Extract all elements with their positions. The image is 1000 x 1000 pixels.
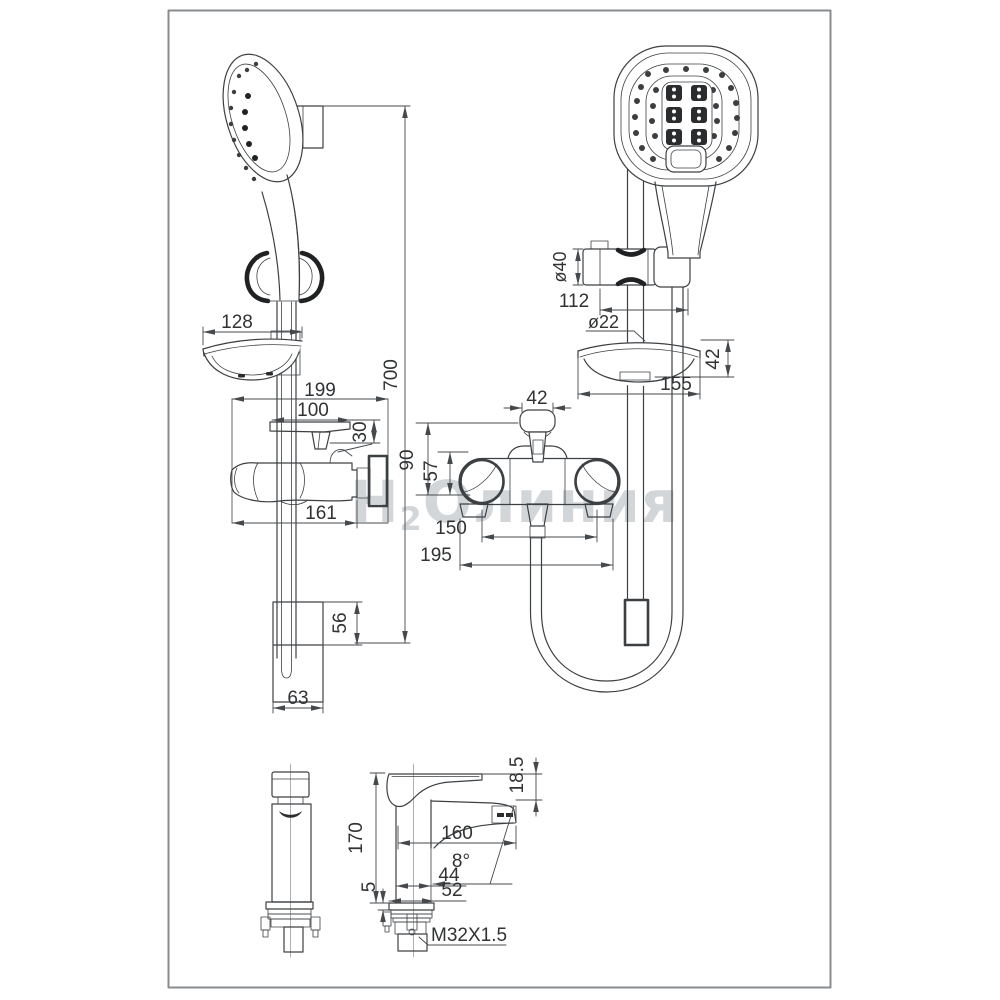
- dim-label-d22: ø22: [588, 312, 619, 332]
- dim-label-700: 700: [381, 359, 402, 391]
- hand-shower-front-view: [614, 46, 758, 258]
- dim-inlet-spacing: 150: [435, 510, 597, 542]
- dim-holder-diameter: ø40: [550, 249, 583, 285]
- dim-label-d40: ø40: [550, 251, 570, 282]
- rail-end-cap: [625, 600, 648, 645]
- soap-dish-side-view: [203, 331, 302, 380]
- dim-label-199: 199: [304, 380, 336, 401]
- dim-label-112: 112: [559, 291, 589, 312]
- dim-handle-height: 30: [330, 420, 380, 452]
- dim-bracket-width: 63: [273, 688, 323, 713]
- dim-label-56: 56: [330, 612, 351, 633]
- dim-bar-diameter: ø22: [586, 312, 645, 341]
- bottom-wall-bracket: [273, 602, 323, 702]
- dim-base-width: 52: [389, 880, 466, 901]
- drawing-sheet: Н2Олиния: [0, 0, 1000, 1000]
- dim-handle-length: 100: [272, 400, 380, 421]
- dim-label-90: 90: [397, 449, 418, 470]
- dim-holder-width: 112: [559, 289, 688, 315]
- dim-label-160: 160: [441, 823, 473, 844]
- left-union-nut: [460, 504, 488, 517]
- dim-label-170: 170: [346, 822, 367, 854]
- basin-mixer-views: 170 18.5 160 8°: [261, 757, 542, 957]
- technical-drawing-svg: 128 700 199 100 30: [0, 0, 1000, 1000]
- wall-mixer-front-view: [459, 410, 620, 538]
- dim-mixer-body-width: 161: [232, 500, 388, 528]
- dim-label-18-5: 18.5: [507, 757, 528, 794]
- dim-label-195: 195: [420, 545, 452, 566]
- dim-label-155: 155: [660, 374, 692, 395]
- dim-rail-length: 700: [323, 106, 410, 643]
- dim-bracket-height: 56: [323, 602, 362, 645]
- dim-label-128: 128: [221, 312, 253, 333]
- shower-set-front-view: ø40 112 ø22 42: [397, 46, 758, 692]
- dim-label-100: 100: [297, 400, 329, 421]
- right-union-nut: [585, 504, 613, 517]
- dim-label-52: 52: [441, 880, 462, 901]
- dim-label-30: 30: [350, 421, 371, 442]
- mixer-handle-front: [520, 410, 555, 432]
- dim-label-161: 161: [305, 503, 337, 524]
- dim-label-63: 63: [287, 688, 308, 709]
- dim-label-42-dish: 42: [703, 348, 724, 369]
- dim-label-42-handle: 42: [526, 388, 547, 409]
- dim-label-thread: M32X1.5: [431, 925, 507, 946]
- dim-label-5: 5: [359, 882, 380, 893]
- dim-mixer-handle-width: 42: [504, 388, 571, 412]
- dim-mixer-box-width: 199: [232, 380, 388, 401]
- shower-set-side-view: 128 700 199 100 30: [203, 44, 410, 713]
- label-thread-size: M32X1.5: [419, 925, 507, 946]
- dim-spout-reach: 160: [398, 823, 516, 849]
- dim-label-150: 150: [435, 518, 467, 539]
- dim-label-57: 57: [421, 460, 442, 481]
- basin-mixer-front-view: [261, 764, 320, 957]
